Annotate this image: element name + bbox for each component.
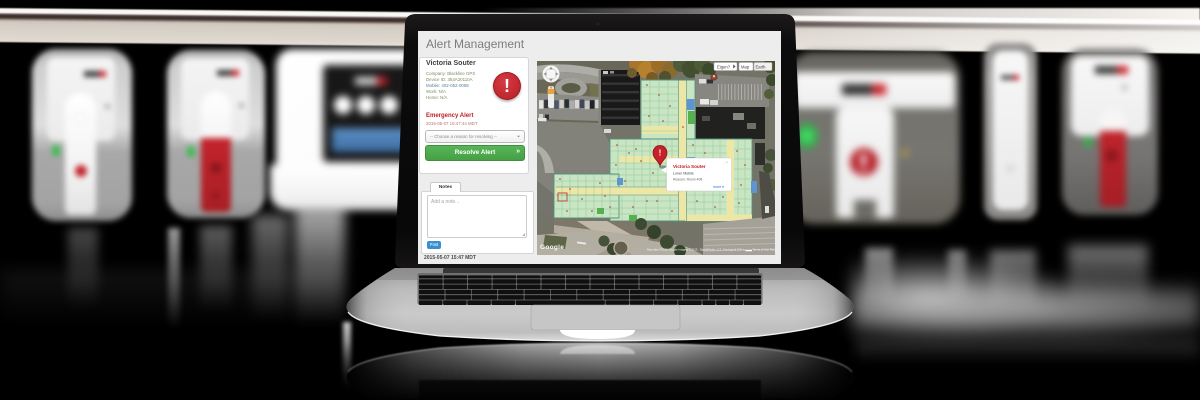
- svg-text:Victoria Souter: Victoria Souter: [673, 164, 706, 169]
- svg-text:Earth: Earth: [756, 65, 767, 70]
- svg-text:Reason: Room 408: Reason: Room 408: [673, 178, 702, 182]
- svg-text:Map: Map: [741, 65, 750, 70]
- svg-text:Google: Google: [540, 244, 564, 251]
- svg-text:Eigen?: Eigen?: [717, 65, 731, 70]
- svg-text:Map data ©2015 Google Imagery: Map data ©2015 Google Imagery ©2015 , Di…: [647, 248, 775, 252]
- svg-text:Loner Mobile: Loner Mobile: [673, 172, 694, 176]
- svg-text:more ▾: more ▾: [713, 185, 724, 189]
- svg-text:!: !: [659, 149, 662, 158]
